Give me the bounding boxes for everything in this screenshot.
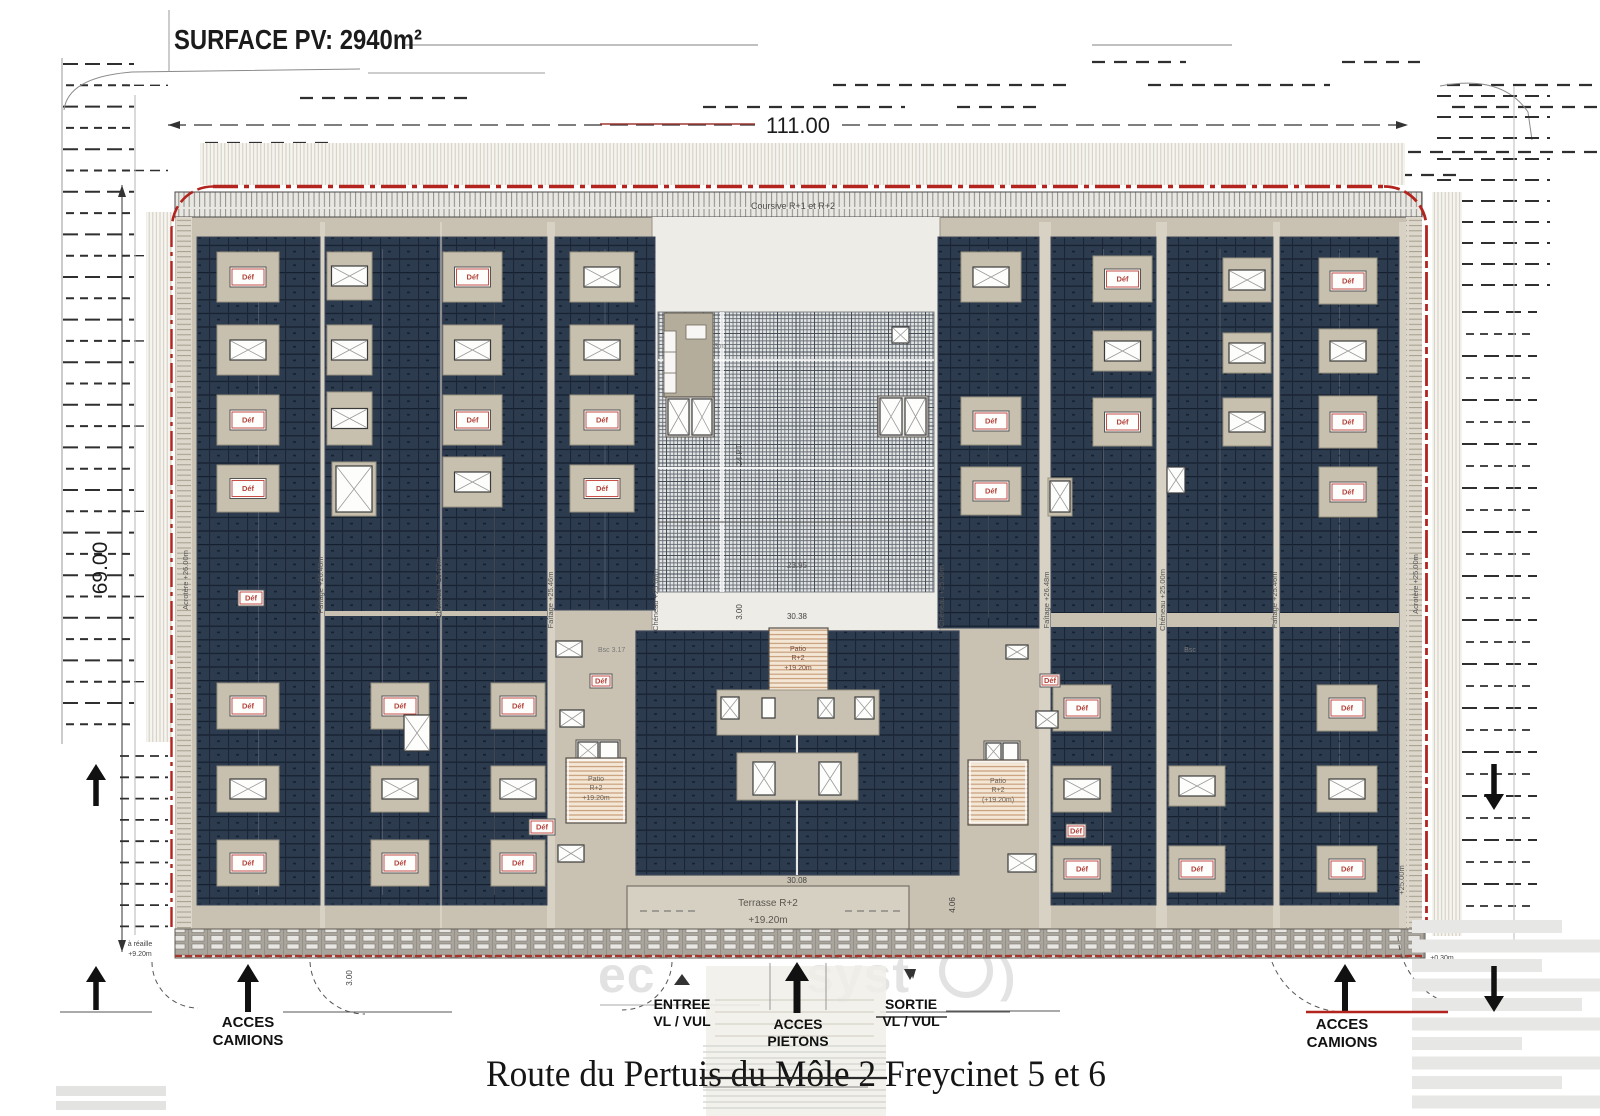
svg-text:Déf: Déf xyxy=(1342,277,1355,286)
svg-text:SORTIE: SORTIE xyxy=(885,996,937,1012)
svg-text:24 PT: 24 PT xyxy=(735,444,744,465)
svg-text:Déf: Déf xyxy=(985,487,998,496)
svg-text:Déf: Déf xyxy=(1342,488,1355,497)
svg-text:30.38: 30.38 xyxy=(787,612,808,621)
svg-text:CAMIONS: CAMIONS xyxy=(213,1032,284,1049)
svg-text:+9.20m: +9.20m xyxy=(128,951,152,958)
svg-text:+19.20m: +19.20m xyxy=(582,795,610,802)
svg-text:Déf: Déf xyxy=(595,677,608,686)
svg-text:Déf: Déf xyxy=(242,484,255,493)
svg-text:Chéneau +25.00m: Chéneau +25.00m xyxy=(434,557,443,619)
svg-text:Déf: Déf xyxy=(466,273,479,282)
svg-text:R+2: R+2 xyxy=(991,787,1004,794)
svg-text:SURFACE PV: 2940m²: SURFACE PV: 2940m² xyxy=(174,24,422,55)
svg-text:111.00: 111.00 xyxy=(766,113,830,138)
svg-text:Déf: Déf xyxy=(1044,676,1057,685)
svg-text:Bsc 3.17: Bsc 3.17 xyxy=(598,647,625,654)
svg-text:Chéneau +25.00m: Chéneau +25.00m xyxy=(651,569,660,631)
svg-text:CAMIONS: CAMIONS xyxy=(1307,1034,1378,1051)
svg-text:Route du Pertuis du Môle 2 Fre: Route du Pertuis du Môle 2 Freycinet 5 e… xyxy=(486,1054,1106,1095)
svg-text:ACCES: ACCES xyxy=(773,1016,822,1032)
svg-text:Déf: Déf xyxy=(466,416,479,425)
svg-text:Chéneau +25.00m: Chéneau +25.00m xyxy=(1158,569,1167,631)
svg-text:Terrasse R+2: Terrasse R+2 xyxy=(738,898,798,909)
svg-text:PIETONS: PIETONS xyxy=(767,1033,828,1049)
svg-text:Déf: Déf xyxy=(512,859,525,868)
svg-text:3.00: 3.00 xyxy=(735,604,744,620)
svg-text:+19.20m: +19.20m xyxy=(748,915,787,926)
svg-text:Patio: Patio xyxy=(990,778,1006,785)
svg-text:Déf: Déf xyxy=(1116,275,1129,284)
svg-text:VL / VUL: VL / VUL xyxy=(653,1013,711,1029)
svg-text:Déf: Déf xyxy=(1191,865,1204,874)
svg-text:Patio: Patio xyxy=(588,776,604,783)
svg-text:Patio: Patio xyxy=(790,646,806,653)
svg-text:Déf: Déf xyxy=(512,702,525,711)
svg-text:30.08: 30.08 xyxy=(787,876,808,885)
svg-text:3.00: 3.00 xyxy=(345,970,354,986)
svg-text:Déf: Déf xyxy=(596,416,609,425)
svg-text:Déf: Déf xyxy=(242,416,255,425)
svg-text:Coursive R+1 et R+2: Coursive R+1 et R+2 xyxy=(751,201,835,211)
svg-text:Déf: Déf xyxy=(394,859,407,868)
svg-text:(+19.20m): (+19.20m) xyxy=(982,797,1014,804)
svg-text:Acrotère +26.00m: Acrotère +26.00m xyxy=(181,550,190,610)
svg-text:Faîtage +25.46m: Faîtage +25.46m xyxy=(1270,572,1279,629)
svg-text:Déf: Déf xyxy=(242,702,255,711)
svg-text:Faîtage +25.46m: Faîtage +25.46m xyxy=(546,572,555,629)
svg-text:4.06: 4.06 xyxy=(948,897,957,913)
svg-text:Bsc: Bsc xyxy=(1184,647,1196,654)
svg-text:Déf: Déf xyxy=(596,484,609,493)
svg-text:Acrotère +25.00m: Acrotère +25.00m xyxy=(1411,554,1420,614)
svg-text:Déf: Déf xyxy=(394,702,407,711)
svg-text:à réaille: à réaille xyxy=(128,941,153,948)
svg-text:Déf: Déf xyxy=(536,823,549,832)
svg-text:Déf: Déf xyxy=(1116,418,1129,427)
svg-text:23.95: 23.95 xyxy=(787,561,808,570)
svg-text:Déf: Déf xyxy=(1076,865,1089,874)
svg-text:Faîtage +26.48m: Faîtage +26.48m xyxy=(316,557,325,614)
svg-text:Chéneau +25.00m: Chéneau +25.00m xyxy=(937,565,946,627)
svg-text:VL / VUL: VL / VUL xyxy=(882,1013,940,1029)
svg-text:Déf: Déf xyxy=(985,417,998,426)
svg-text:Déf: Déf xyxy=(242,273,255,282)
svg-text:69.00: 69.00 xyxy=(89,542,112,595)
svg-text:ACCES: ACCES xyxy=(1316,1016,1369,1033)
svg-text:+19.20m: +19.20m xyxy=(784,665,812,672)
svg-text:+25.00m: +25.00m xyxy=(1397,865,1406,894)
svg-text:Déf: Déf xyxy=(1076,704,1089,713)
svg-text:Déf: Déf xyxy=(242,859,255,868)
svg-text:R+2: R+2 xyxy=(589,785,602,792)
svg-text:ENTREE: ENTREE xyxy=(654,996,711,1012)
svg-text:Déf: Déf xyxy=(1070,827,1083,836)
svg-text:Déf: Déf xyxy=(1341,865,1354,874)
svg-text:Faîtage +26.48m: Faîtage +26.48m xyxy=(1042,572,1051,629)
svg-text:R+2: R+2 xyxy=(791,655,804,662)
svg-text:Déf: Déf xyxy=(1342,418,1355,427)
svg-text:Déf: Déf xyxy=(1341,704,1354,713)
svg-text:ACCES: ACCES xyxy=(222,1014,275,1031)
svg-text:Déf: Déf xyxy=(245,594,258,603)
